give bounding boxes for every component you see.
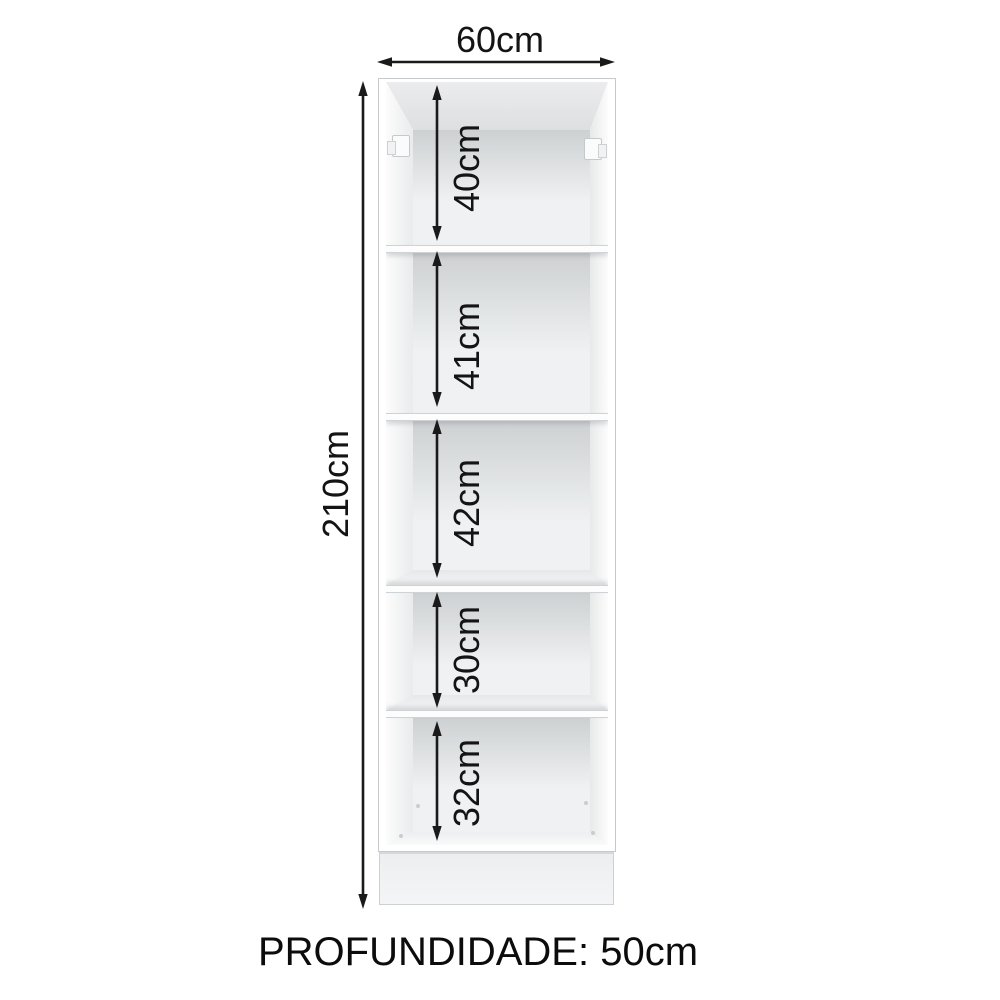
height-dimension-label: 210cm <box>316 404 356 564</box>
hinge-bracket-icon <box>584 138 602 160</box>
compartment-dimension-label: 42cm <box>447 443 487 563</box>
compartment-dimension-label: 30cm <box>447 590 487 710</box>
cabinet-interior-floor <box>386 832 608 845</box>
compartment-dimension-label: 32cm <box>447 723 487 843</box>
shelf <box>386 413 608 421</box>
furniture-dimension-diagram: 60cm 210cm <box>0 0 1000 1000</box>
compartment-dimension-arrow-icon <box>429 250 445 408</box>
hinge-bracket-icon <box>392 135 410 157</box>
cabinet-body <box>378 78 616 852</box>
cabinet-interior-top <box>386 82 608 130</box>
shelf-top-surface <box>386 695 608 710</box>
cabinet-left-wall <box>386 82 413 845</box>
shelf-top-surface <box>386 570 608 585</box>
compartment-dimension-label: 40cm <box>447 108 487 228</box>
shelf <box>386 710 608 718</box>
cabinet-plinth <box>379 852 614 905</box>
compartment-dimension-label: 41cm <box>447 286 487 406</box>
compartment-dimension-arrow-icon <box>429 418 445 579</box>
shelf <box>386 585 608 593</box>
cabinet-right-wall <box>590 82 608 845</box>
compartment-dimension-arrow-icon <box>429 84 445 242</box>
compartment-dimension-arrow-icon <box>429 591 445 709</box>
width-dimension-arrow-icon <box>376 54 616 70</box>
shelf-pin-hole <box>416 804 420 808</box>
height-dimension-arrow-icon <box>355 80 371 910</box>
cabinet-interior <box>386 82 608 845</box>
shelf <box>386 245 608 253</box>
depth-dimension-label: PROFUNDIDADE: 50cm <box>258 929 698 975</box>
shelf-pin-hole <box>584 801 588 805</box>
compartment-dimension-arrow-icon <box>429 720 445 842</box>
shelf-pin-hole <box>399 834 403 838</box>
shelf-pin-hole <box>591 831 595 835</box>
